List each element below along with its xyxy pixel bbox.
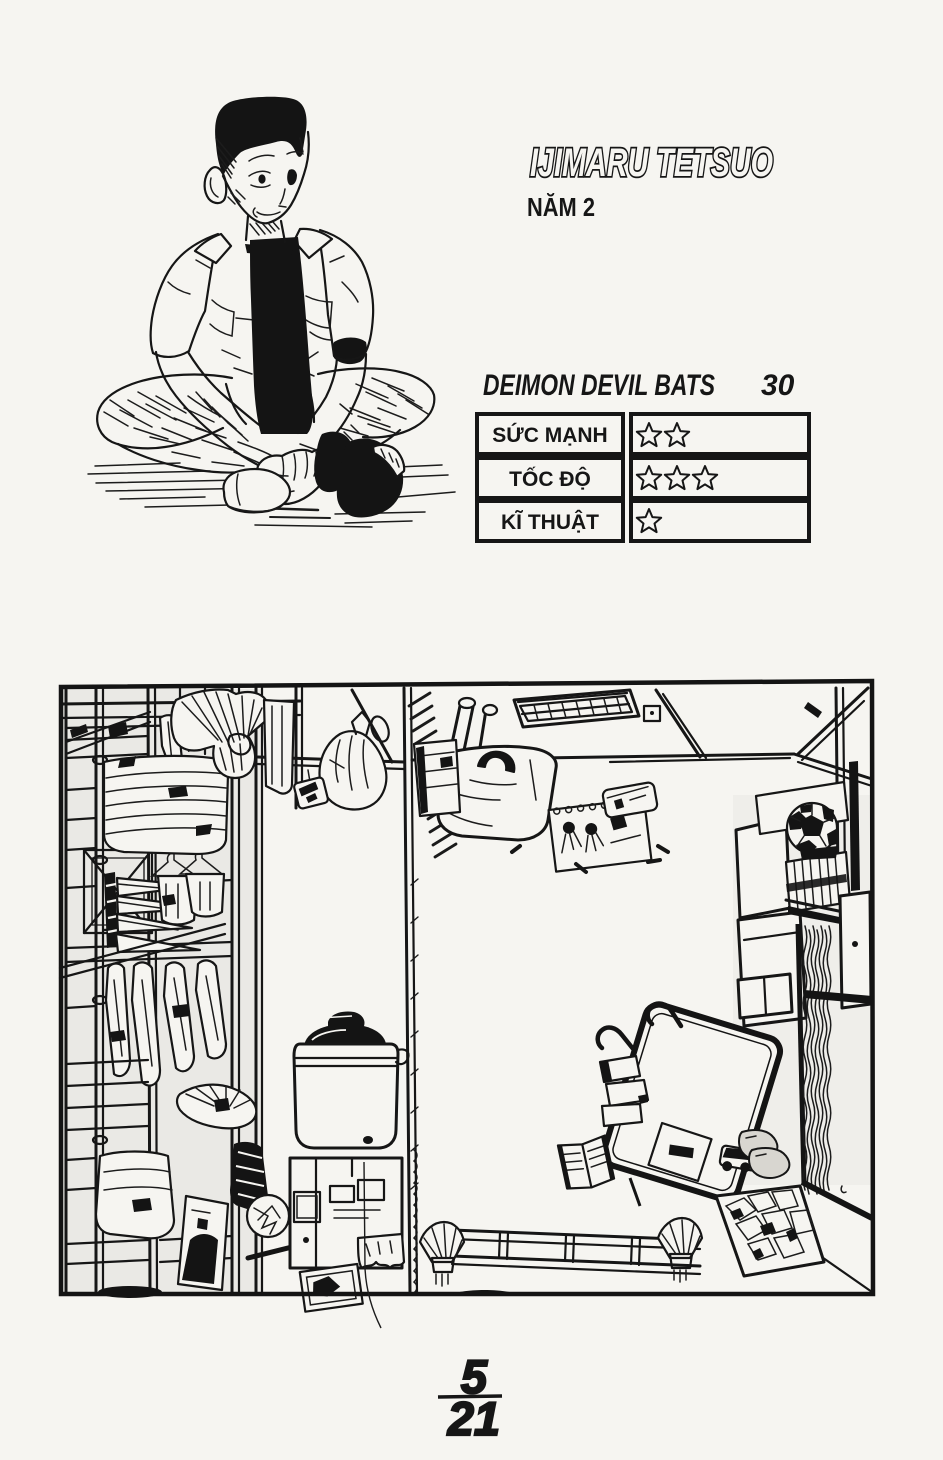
svg-text:IJIMARU TETSUO: IJIMARU TETSUO — [530, 141, 773, 185]
svg-text:TỐC ĐỘ: TỐC ĐỘ — [509, 467, 591, 491]
svg-text:NĂM 2: NĂM 2 — [527, 192, 595, 222]
svg-text:30: 30 — [761, 369, 795, 402]
svg-text:SỨC MẠNH: SỨC MẠNH — [492, 423, 607, 447]
svg-text:DEIMON DEVIL BATS: DEIMON DEVIL BATS — [483, 369, 715, 402]
svg-text:21: 21 — [447, 1392, 500, 1445]
svg-text:KĨ THUẬT: KĨ THUẬT — [501, 510, 599, 534]
